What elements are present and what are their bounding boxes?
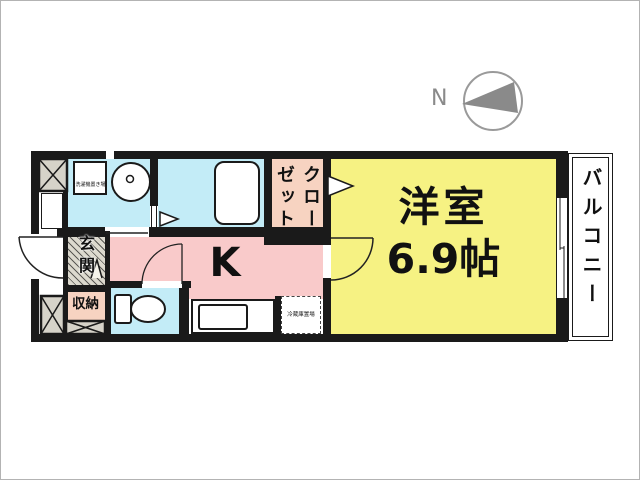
storage-label: 収納	[66, 297, 105, 312]
kitchen-label: K	[116, 241, 334, 285]
washing-machine-label: 洗濯機置き場	[74, 183, 107, 189]
main-room-name: 洋室	[331, 185, 556, 230]
shaft-box-top-left	[39, 159, 67, 191]
closet-label: クローゼット	[273, 165, 323, 233]
shaft-box-under-storage	[66, 321, 105, 334]
balcony-label: バルコニー	[577, 167, 605, 337]
fridge-label: 冷蔵庫置場	[282, 312, 320, 318]
washbasin-icon	[112, 163, 150, 201]
entrance-door-arc	[19, 237, 63, 278]
compass-icon	[462, 72, 522, 130]
balcony-window-lines	[560, 198, 564, 298]
toilet-icon	[115, 295, 165, 323]
compass-label: N	[431, 87, 447, 111]
floorplan-page: N 洋室 6.9帖 K クローゼット バルコニー 玄関 収納 洗濯機置き場 冷蔵…	[0, 0, 640, 480]
entrance-label: 玄関	[75, 235, 95, 287]
main-room-size: 6.9帖	[331, 237, 556, 282]
bath-door	[152, 206, 179, 227]
shaft-box-bottom-left	[41, 296, 64, 334]
